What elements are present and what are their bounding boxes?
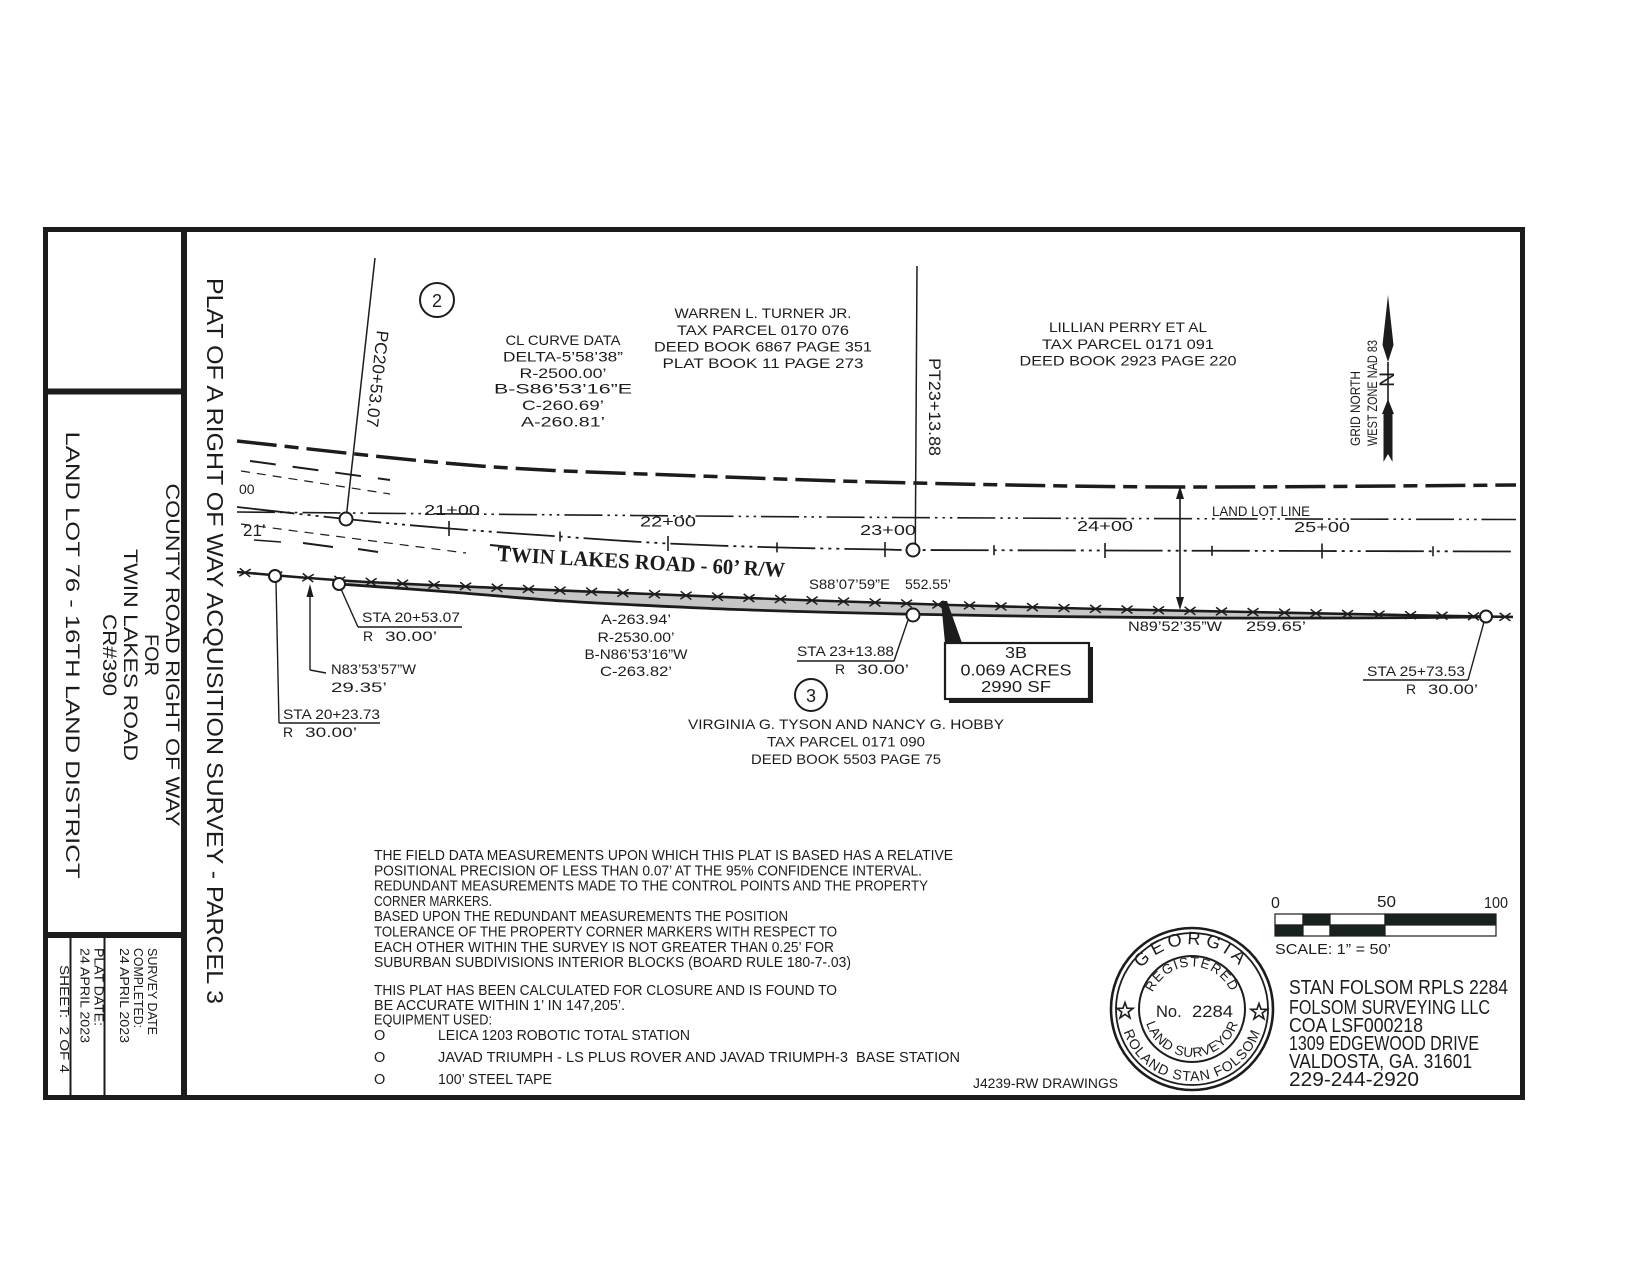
svg-text:PLAT BOOK 11 PAGE 273: PLAT BOOK 11 PAGE 273 (663, 355, 864, 371)
svg-text:O: O (374, 1028, 385, 1044)
svg-text:POSITIONAL PRECISION OF LESS T: POSITIONAL PRECISION OF LESS THAN 0.07’ … (374, 863, 922, 879)
svg-text:TAX PARCEL 0171 090: TAX PARCEL 0171 090 (767, 734, 925, 750)
svg-text:TOLERANCE OF THE PROPERTY CORN: TOLERANCE OF THE PROPERTY CORNER MARKERS… (374, 925, 837, 941)
svg-text:C-263.82’: C-263.82’ (600, 663, 672, 679)
svg-text:2990 SF: 2990 SF (981, 679, 1051, 696)
svg-text:0.069 ACRES: 0.069 ACRES (961, 663, 1072, 680)
svg-text:SCALE: 1” = 50’: SCALE: 1” = 50’ (1275, 941, 1391, 958)
svg-text:TAX PARCEL 0171 091: TAX PARCEL 0171 091 (1042, 336, 1214, 352)
svg-text:3B: 3B (1005, 645, 1027, 662)
svg-text:24 APRIL 2023: 24 APRIL 2023 (78, 948, 92, 1043)
svg-text:CL CURVE DATA: CL CURVE DATA (506, 332, 622, 348)
svg-text:0: 0 (1271, 895, 1280, 912)
svg-text:30.00’: 30.00’ (305, 724, 357, 740)
svg-text:J4239-RW DRAWINGS: J4239-RW DRAWINGS (973, 1076, 1118, 1091)
svg-text:2: 2 (432, 291, 442, 311)
svg-text:EQUIPMENT USED:: EQUIPMENT USED: (374, 1013, 492, 1029)
svg-text:LEICA 1203 ROBOTIC TOTAL STATI: LEICA 1203 ROBOTIC TOTAL STATION (438, 1028, 690, 1044)
svg-text:R-2530.00’: R-2530.00’ (598, 629, 675, 645)
svg-text:No.: No. (1156, 1003, 1182, 1021)
svg-text:LAND LOT LINE: LAND LOT LINE (1212, 504, 1310, 519)
svg-text:STA 25+73.53: STA 25+73.53 (1367, 663, 1465, 679)
svg-text:24+00: 24+00 (1077, 519, 1133, 535)
svg-text:A-260.81’: A-260.81’ (521, 414, 605, 430)
svg-text:WARREN L. TURNER JR.: WARREN L. TURNER JR. (675, 305, 852, 321)
svg-text:TWIN LAKES ROAD: TWIN LAKES ROAD (119, 549, 141, 761)
svg-text:JAVAD TRIUMPH - LS PLUS ROVER: JAVAD TRIUMPH - LS PLUS ROVER AND JAVAD … (438, 1050, 960, 1066)
svg-text:21+00: 21+00 (424, 503, 480, 519)
svg-text:WEST ZONE NAD 83: WEST ZONE NAD 83 (1365, 340, 1380, 446)
svg-text:BASED UPON THE REDUNDANT MEASU: BASED UPON THE REDUNDANT MEASUREMENTS TH… (374, 909, 788, 925)
svg-text:C-260.69’: C-260.69’ (522, 397, 604, 413)
svg-text:DEED BOOK 2923 PAGE 220: DEED BOOK 2923 PAGE 220 (1020, 353, 1237, 369)
svg-text:24 APRIL 2023: 24 APRIL 2023 (117, 948, 131, 1043)
svg-text:DEED BOOK 6867 PAGE 351: DEED BOOK 6867 PAGE 351 (654, 339, 872, 355)
svg-text:100’ STEEL TAPE: 100’ STEEL TAPE (438, 1072, 552, 1088)
svg-text:SHEET: 2 OF 4: SHEET: 2 OF 4 (57, 965, 71, 1073)
svg-text:O: O (374, 1050, 385, 1066)
svg-text:552.55’: 552.55’ (905, 576, 951, 592)
svg-text:R: R (283, 724, 293, 740)
svg-text:29.35’: 29.35’ (331, 679, 387, 695)
svg-text:COMPLETED:: COMPLETED: (131, 948, 145, 1028)
svg-text:R: R (363, 628, 373, 644)
svg-text:BE ACCURATE WITHIN 1’ IN 147,2: BE ACCURATE WITHIN 1’ IN 147,205’. (374, 998, 625, 1014)
svg-text:O: O (374, 1072, 385, 1088)
svg-text:100: 100 (1484, 895, 1508, 912)
svg-text:LILLIAN PERRY ET AL: LILLIAN PERRY ET AL (1049, 319, 1207, 335)
svg-text:CR#390: CR#390 (98, 614, 120, 696)
svg-text:30.00’: 30.00’ (1428, 681, 1478, 697)
svg-text:A-263.94’: A-263.94’ (601, 611, 671, 627)
svg-text:N83’53’57”W: N83’53’57”W (331, 661, 417, 677)
svg-text:S88’07’59”E: S88’07’59”E (809, 576, 890, 592)
svg-text:TAX PARCEL 0170 076: TAX PARCEL 0170 076 (677, 322, 849, 338)
svg-text:COUNTY ROAD RIGHT OF WAY: COUNTY ROAD RIGHT OF WAY (161, 484, 183, 827)
svg-text:259.65’: 259.65’ (1246, 618, 1306, 634)
svg-text:30.00’: 30.00’ (385, 628, 437, 644)
svg-text:3: 3 (806, 686, 816, 706)
svg-text:R-2500.00’: R-2500.00’ (520, 365, 607, 381)
svg-text:DEED BOOK 5503 PAGE 75: DEED BOOK 5503 PAGE 75 (751, 751, 941, 767)
svg-text:THE FIELD DATA MEASUREMENTS UP: THE FIELD DATA MEASUREMENTS UPON WHICH T… (374, 848, 953, 864)
svg-text:22+00: 22+00 (640, 515, 696, 531)
svg-text:STA 20+23.73: STA 20+23.73 (283, 706, 380, 722)
svg-text:THIS PLAT HAS BEEN CALCULATED: THIS PLAT HAS BEEN CALCULATED FOR CLOSUR… (374, 983, 837, 999)
svg-text:SUBURBAN SUBDIVISIONS INTERIOR: SUBURBAN SUBDIVISIONS INTERIOR BLOCKS (B… (374, 955, 851, 971)
svg-text:23+00: 23+00 (860, 523, 916, 539)
svg-text:PLAT OF A RIGHT OF WAY ACQUISI: PLAT OF A RIGHT OF WAY ACQUISITION SURVE… (202, 278, 228, 1004)
svg-text:EACH OTHER WITHIN THE SURVEY I: EACH OTHER WITHIN THE SURVEY IS NOT GREA… (374, 940, 834, 956)
svg-text:PT23+13.88: PT23+13.88 (925, 358, 944, 456)
svg-text:N89’52’35”W: N89’52’35”W (1128, 618, 1223, 634)
svg-text:VIRGINIA G. TYSON AND NANCY G.: VIRGINIA G. TYSON AND NANCY G. HOBBY (688, 716, 1005, 732)
svg-text:FOR: FOR (140, 634, 162, 676)
svg-text:229-244-2920: 229-244-2920 (1289, 1069, 1419, 1091)
svg-text:B-S86’53’16”E: B-S86’53’16”E (494, 381, 632, 397)
svg-text:DELTA-5’58’38”: DELTA-5’58’38” (503, 349, 623, 365)
svg-text:50: 50 (1377, 894, 1396, 911)
svg-text:GRID NORTH: GRID NORTH (1348, 371, 1363, 446)
svg-text:STAN FOLSOM RPLS 2284: STAN FOLSOM RPLS 2284 (1289, 977, 1508, 999)
svg-text:CORNER MARKERS.: CORNER MARKERS. (374, 894, 492, 910)
svg-text:2284: 2284 (1192, 1003, 1233, 1021)
svg-text:B-N86’53’16”W: B-N86’53’16”W (585, 646, 689, 662)
svg-text:R: R (835, 661, 845, 677)
svg-text:21’: 21’ (243, 521, 266, 540)
svg-text:LAND LOT 76 - 16TH LAND DISTRI: LAND LOT 76 - 16TH LAND DISTRICT (61, 432, 83, 879)
svg-text:PLAT DATE:: PLAT DATE: (92, 948, 106, 1026)
svg-text:STA 20+53.07: STA 20+53.07 (362, 609, 460, 625)
svg-text:STA 23+13.88: STA 23+13.88 (797, 643, 894, 659)
svg-text:SURVEY DATE: SURVEY DATE (145, 948, 159, 1035)
svg-text:R: R (1406, 681, 1416, 697)
svg-text:00: 00 (239, 481, 255, 497)
svg-text:25+00: 25+00 (1294, 520, 1350, 536)
svg-text:REDUNDANT MEASUREMENTS MADE TO: REDUNDANT MEASUREMENTS MADE TO THE CONTR… (374, 879, 928, 895)
svg-text:30.00’: 30.00’ (857, 661, 909, 677)
